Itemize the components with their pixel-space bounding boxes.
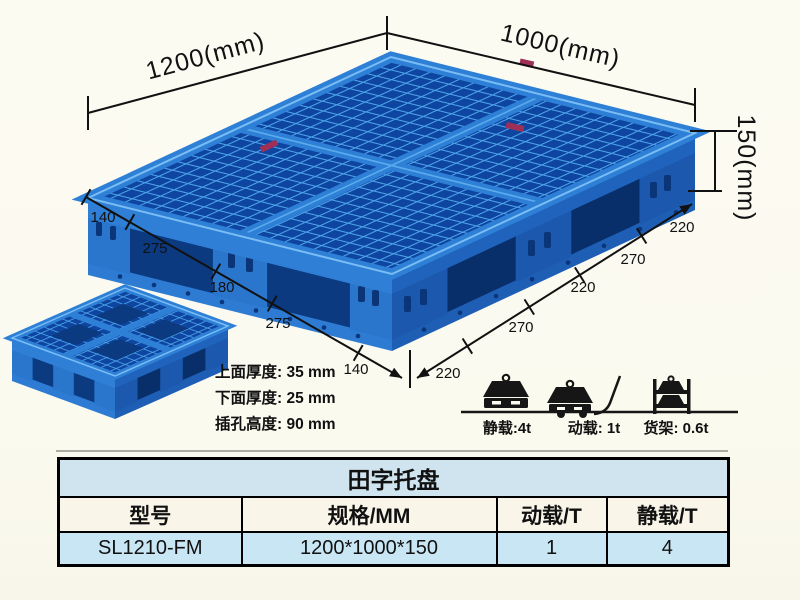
cell-static-load: 4 xyxy=(607,532,729,566)
spec-table: 田字托盘 型号 规格/MM 动载/T 静载/T SL1210-FM 1200*1… xyxy=(57,457,730,567)
table-header-row: 型号 规格/MM 动载/T 静载/T xyxy=(59,497,729,532)
load-labels: 静载:4t 动载: 1t 货架: 0.6t xyxy=(483,419,709,437)
dim-seg: 140 xyxy=(343,361,368,378)
dynamic-load-label: 动载: 1t xyxy=(568,419,621,437)
spec-fork-height: 插孔高度: 90 mm xyxy=(215,414,336,433)
thickness-specs: 上面厚度: 35 mm 下面厚度: 25 mm 插孔高度: 90 mm xyxy=(215,362,336,433)
small-pallet-illustration xyxy=(12,288,228,419)
dim-seg: 275 xyxy=(265,315,290,332)
dim-seg: 275 xyxy=(142,240,167,257)
col-header-model: 型号 xyxy=(59,497,242,532)
cell-spec: 1200*1000*150 xyxy=(242,532,497,566)
dim-seg: 270 xyxy=(620,251,645,268)
dim-label-1200: 1200(mm) xyxy=(143,27,268,86)
spec-top-thickness: 上面厚度: 35 mm xyxy=(215,362,336,381)
dim-seg: 140 xyxy=(90,209,115,226)
dim-label-1000: 1000(mm) xyxy=(498,19,623,74)
load-capacity-icons xyxy=(461,375,738,418)
rack-load-label: 货架: 0.6t xyxy=(643,419,708,437)
col-header-dynamic-load: 动载/T xyxy=(497,497,607,532)
table-title-row: 田字托盘 xyxy=(59,459,729,498)
dim-seg: 220 xyxy=(435,365,460,382)
table-top-shadow xyxy=(56,450,728,452)
dim-seg: 220 xyxy=(669,219,694,236)
static-load-icon xyxy=(483,375,529,408)
dim-seg: 220 xyxy=(570,279,595,296)
cell-dynamic-load: 1 xyxy=(497,532,607,566)
dim-label-150: 150(mm) xyxy=(732,114,760,221)
dim-seg: 180 xyxy=(209,279,234,296)
spec-bottom-thickness: 下面厚度: 25 mm xyxy=(215,388,336,407)
col-header-static-load: 静载/T xyxy=(607,497,729,532)
rack-load-icon xyxy=(653,376,691,414)
cell-model: SL1210-FM xyxy=(59,532,242,566)
static-load-label: 静载:4t xyxy=(483,419,531,437)
pallet-diagram: 1200(mm) 1000(mm) 150(mm) 140 275 180 27… xyxy=(0,0,800,455)
pallet-spec-sheet: 1200(mm) 1000(mm) 150(mm) 140 275 180 27… xyxy=(0,0,800,600)
table-title: 田字托盘 xyxy=(59,459,729,498)
dim-seg: 270 xyxy=(508,319,533,336)
table-row: SL1210-FM 1200*1000*150 1 4 xyxy=(59,532,729,566)
col-header-spec: 规格/MM xyxy=(242,497,497,532)
